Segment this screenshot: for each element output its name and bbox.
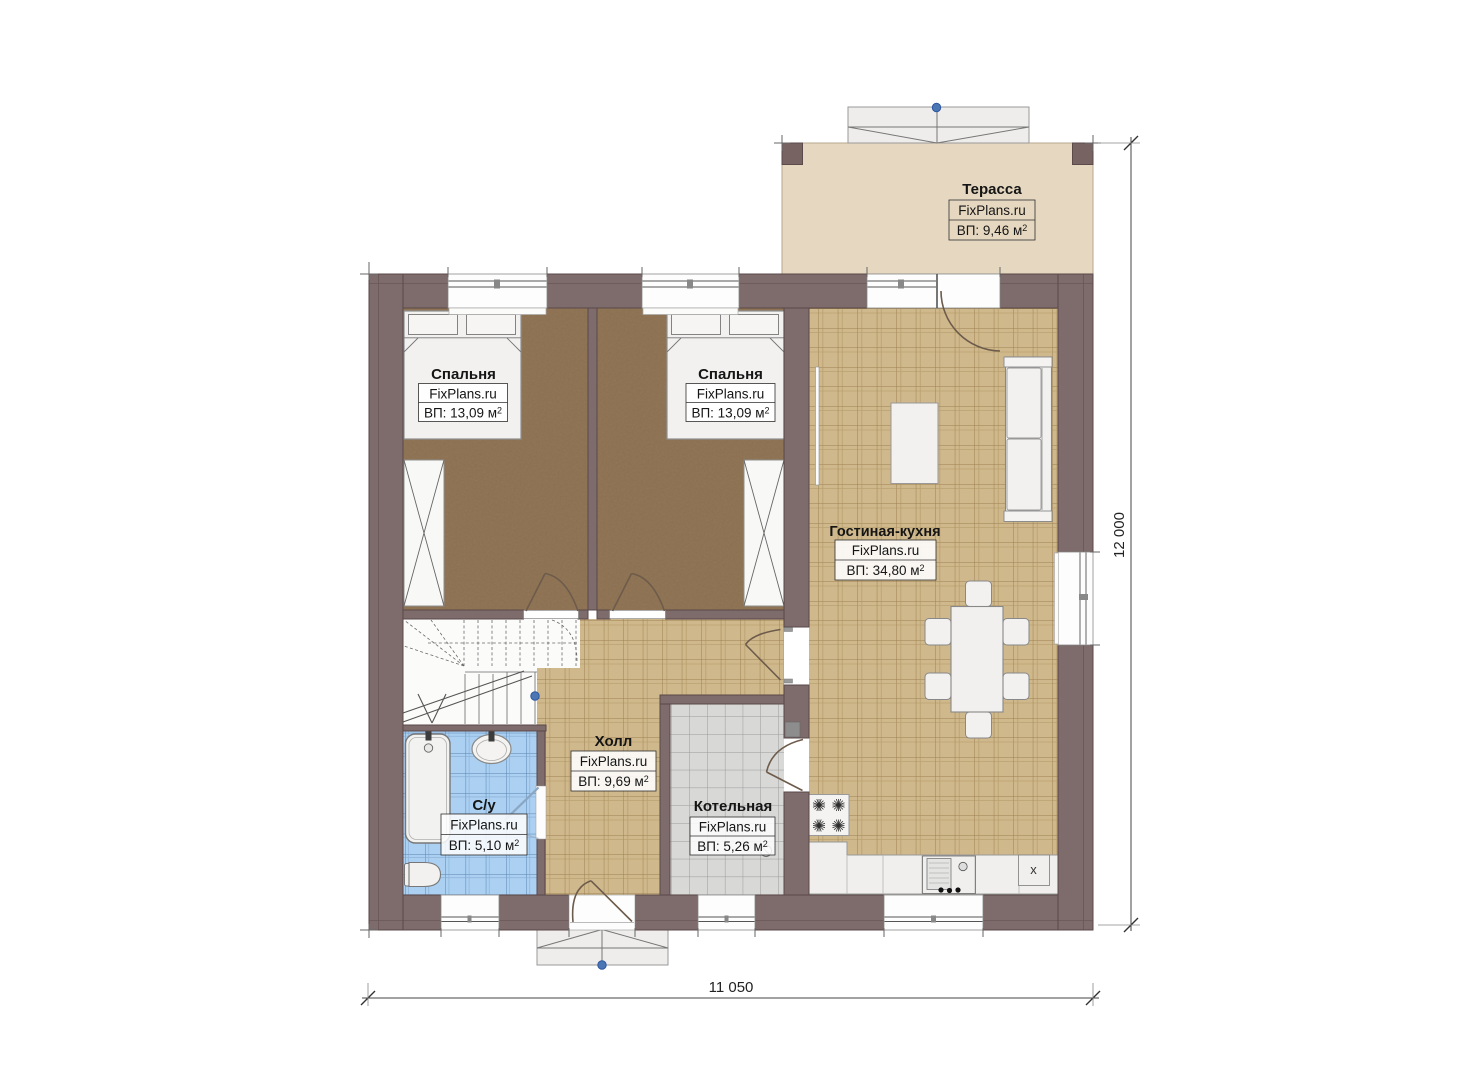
svg-text:FixPlans.ru: FixPlans.ru bbox=[852, 543, 920, 558]
svg-text:С/у: С/у bbox=[472, 797, 496, 814]
svg-text:12 000: 12 000 bbox=[1111, 512, 1128, 558]
svg-text:FixPlans.ru: FixPlans.ru bbox=[958, 203, 1026, 218]
svg-text:FixPlans.ru: FixPlans.ru bbox=[429, 387, 497, 402]
svg-text:x: x bbox=[1030, 862, 1037, 877]
svg-text:ВП: 13,09 м2: ВП: 13,09 м2 bbox=[691, 406, 769, 421]
svg-text:FixPlans.ru: FixPlans.ru bbox=[699, 820, 767, 835]
svg-text:ВП: 9,46 м2: ВП: 9,46 м2 bbox=[957, 223, 1028, 238]
svg-text:ВП: 13,09 м2: ВП: 13,09 м2 bbox=[424, 406, 502, 421]
svg-text:Холл: Холл bbox=[595, 733, 633, 750]
svg-text:Котельная: Котельная bbox=[694, 798, 773, 815]
svg-text:FixPlans.ru: FixPlans.ru bbox=[450, 818, 518, 833]
svg-text:11 050: 11 050 bbox=[709, 979, 754, 996]
svg-text:ВП: 5,26 м2: ВП: 5,26 м2 bbox=[697, 839, 768, 854]
svg-text:Терасса: Терасса bbox=[962, 181, 1022, 198]
svg-text:Спальня: Спальня bbox=[698, 366, 763, 383]
svg-text:ВП: 9,69 м2: ВП: 9,69 м2 bbox=[578, 774, 649, 789]
svg-text:ВП: 5,10 м2: ВП: 5,10 м2 bbox=[449, 838, 520, 853]
svg-text:FixPlans.ru: FixPlans.ru bbox=[580, 754, 648, 769]
svg-text:Гостиная-кухня: Гостиная-кухня bbox=[829, 524, 940, 540]
svg-text:Спальня: Спальня bbox=[431, 366, 496, 383]
svg-text:ВП: 34,80 м2: ВП: 34,80 м2 bbox=[846, 563, 924, 578]
svg-text:FixPlans.ru: FixPlans.ru bbox=[697, 387, 765, 402]
